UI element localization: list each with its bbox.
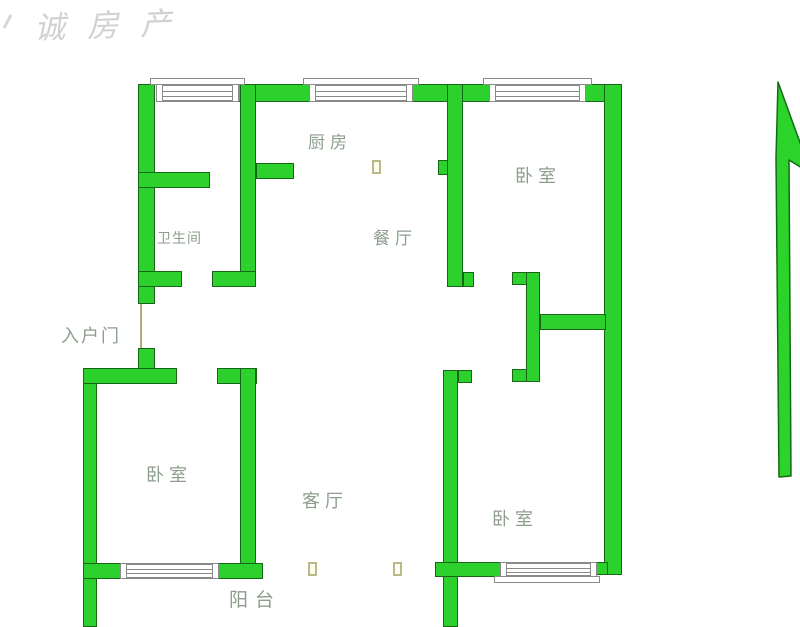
wall-right-foot: [596, 562, 608, 575]
room-label-entrance: 入户门: [61, 326, 121, 348]
wall-bracket-bottom-flange: [512, 369, 527, 382]
wall-bathroom-kitchen-divider: [240, 84, 256, 284]
wall-entry-lower: [138, 348, 155, 370]
window-bedroom-bl: [121, 563, 218, 579]
door-icon-balcony-right: [393, 562, 402, 576]
wall-crossbar: [540, 314, 606, 330]
wall-bl-north-left: [83, 368, 177, 384]
floorplan-canvas: 诚房产: [0, 0, 800, 627]
room-label-dining: 餐厅: [373, 229, 417, 249]
room-label-bedroom-top-right: 卧室: [515, 166, 561, 188]
watermark-fragment: [3, 14, 13, 29]
wall-bl-south-right: [218, 563, 263, 579]
door-icon-balcony-left: [308, 562, 317, 576]
wall-kitchen-dining-east: [447, 84, 463, 287]
wall-bl-east: [240, 368, 256, 566]
wall-br-west: [443, 370, 458, 627]
room-label-bedroom-bottom-right: 卧室: [492, 509, 538, 531]
wall-bl-south-left: [83, 563, 121, 579]
door-icon-kitchen: [372, 160, 381, 174]
wall-kitchen-stub: [256, 163, 294, 179]
watermark: 诚房产: [33, 0, 193, 48]
wall-bracket-vertical: [526, 272, 540, 382]
north-arrow-icon: [766, 76, 800, 482]
wall-kitchen-nub: [438, 160, 448, 175]
wall-right-exterior: [604, 84, 622, 575]
wall-bathroom-bottom-right: [212, 271, 256, 287]
wall-bl-west: [83, 368, 97, 627]
wall-bathroom-top: [138, 172, 210, 188]
wall-br-south: [435, 562, 501, 577]
window-top-1: [157, 84, 238, 102]
window-top-2: [310, 84, 412, 102]
room-label-balcony: 阳台: [229, 589, 281, 612]
room-label-bathroom: 卫生间: [157, 231, 202, 248]
room-label-bedroom-bottom-left: 卧室: [146, 465, 192, 487]
wall-bathroom-bottom-left: [138, 271, 182, 287]
room-label-living: 客厅: [302, 491, 348, 513]
entrance-door-line: [140, 304, 142, 348]
window-bedroom-br: [501, 562, 596, 577]
wall-kitchen-east-foot: [463, 272, 474, 287]
room-label-kitchen: 厨房: [308, 133, 352, 153]
wall-br-west-flange: [458, 370, 472, 383]
wall-bracket-top-flange: [512, 272, 527, 285]
window-top-3: [490, 84, 585, 102]
